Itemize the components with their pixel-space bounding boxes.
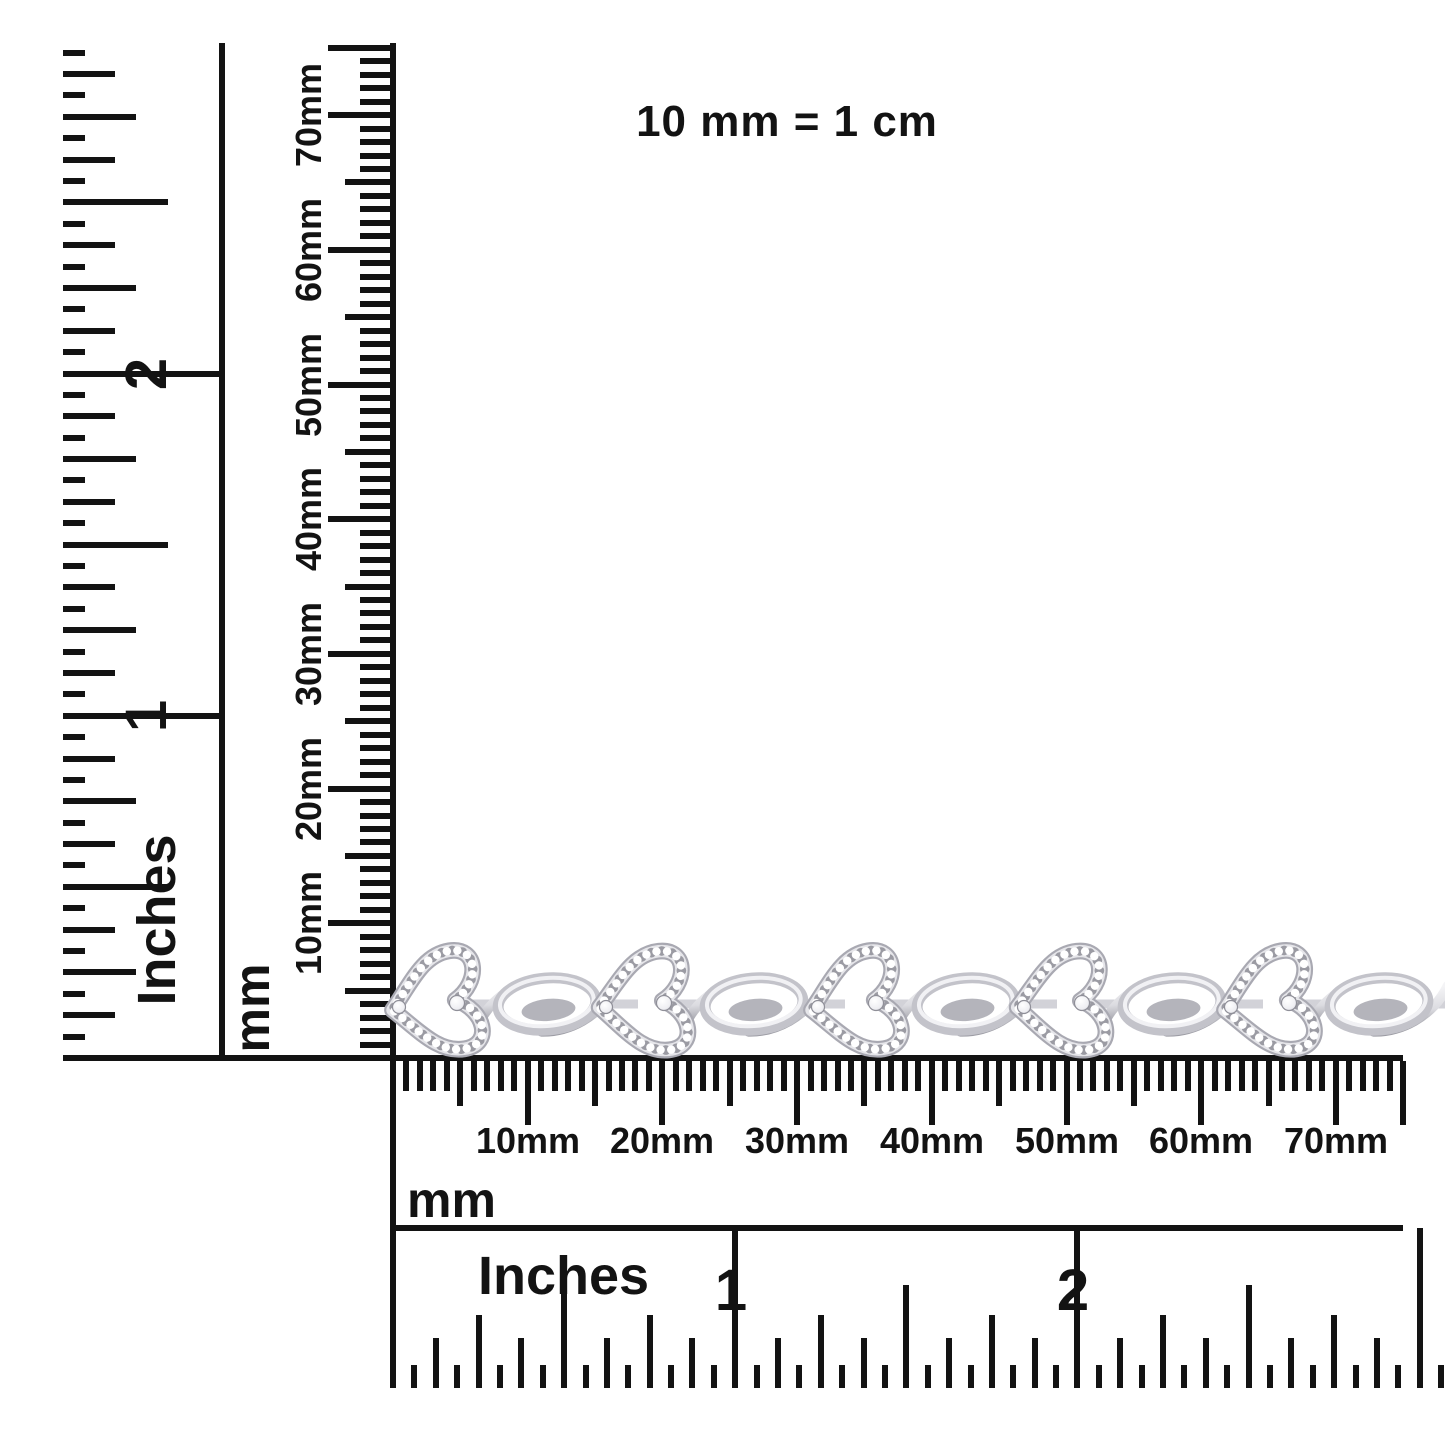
mm-tick [360, 139, 390, 145]
horizontal-inches-unit-label: Inches [478, 1249, 649, 1303]
inch-tick [63, 114, 136, 120]
mm-tick [360, 759, 390, 765]
inch-tick [818, 1315, 824, 1388]
inch-tick [796, 1365, 802, 1388]
inch-tick [647, 1315, 653, 1388]
product-scale-photo: 10 mm = 1 cm 12 10mm20mm30mm40mm50mm60mm… [0, 0, 1445, 1445]
inch-tick [1374, 1338, 1380, 1388]
inch-tick [540, 1365, 546, 1388]
mm-tick [360, 395, 390, 401]
inch-tick [63, 606, 85, 612]
inch-tick [63, 50, 85, 56]
mm-tick [360, 476, 390, 482]
mm-tick [345, 718, 390, 724]
vertical-mm-unit-label: mm [227, 964, 277, 1053]
mm-tick [328, 920, 390, 926]
mm-tick [360, 543, 390, 549]
mm-tick [360, 99, 390, 105]
inch-tick [946, 1338, 952, 1388]
inch-tick [1353, 1365, 1359, 1388]
mm-tick [360, 355, 390, 361]
mm-tick-label: 30mm [291, 602, 327, 706]
mm-tick [345, 853, 390, 859]
scale-note: 10 mm = 1 cm [636, 100, 938, 144]
mm-tick [360, 503, 390, 509]
mm-tick [360, 368, 390, 374]
inch-tick [583, 1365, 589, 1388]
inch-tick [754, 1365, 760, 1388]
inch-tick [63, 948, 85, 954]
inch-tick [1181, 1365, 1187, 1388]
vertical-mm-ruler-edge-line [390, 43, 396, 1388]
mm-tick [360, 772, 390, 778]
inch-tick [882, 1365, 888, 1388]
inch-tick [518, 1338, 524, 1388]
mm-tick [360, 530, 390, 536]
cleft-diamond [657, 996, 672, 1011]
inch-tick [604, 1338, 610, 1388]
inch-tick [63, 991, 85, 997]
inch-tick [63, 563, 85, 569]
inch-tick [1032, 1338, 1038, 1388]
inch-tick [1010, 1365, 1016, 1388]
inch-tick [63, 670, 115, 676]
mm-tick [360, 597, 390, 603]
mm-tick [360, 126, 390, 132]
inch-tick [63, 734, 85, 740]
mm-tick [360, 233, 390, 239]
inch-tick [454, 1365, 460, 1388]
inch-number-label: 1 [118, 700, 176, 732]
inch-tick [63, 905, 85, 911]
mm-tick [360, 220, 390, 226]
vertical-inches-unit-label: Inches [130, 834, 184, 1005]
mm-tick [360, 287, 390, 293]
inch-tick [1053, 1365, 1059, 1388]
mm-tick-label: 10mm [291, 871, 327, 975]
mm-tick [360, 880, 390, 886]
mm-tick-label: 70mm [1284, 1123, 1388, 1159]
inch-tick [1246, 1285, 1252, 1388]
inch-tick [63, 756, 115, 762]
mm-tick [360, 866, 390, 872]
inch-tick [63, 627, 136, 633]
inch-tick [63, 435, 85, 441]
twist-link [682, 972, 826, 1038]
inch-tick [903, 1285, 909, 1388]
mm-tick [328, 112, 390, 118]
mm-tick [360, 570, 390, 576]
inch-tick [63, 328, 115, 334]
mm-tick [345, 584, 390, 590]
inch-tick [63, 349, 85, 355]
mm-tick [360, 705, 390, 711]
inch-tick [1224, 1365, 1230, 1388]
mm-tick-label: 30mm [745, 1123, 849, 1159]
inch-tick [63, 499, 115, 505]
inch-number-label: 2 [118, 358, 176, 390]
mm-tick [328, 651, 390, 657]
mm-tick [360, 260, 390, 266]
mm-tick [328, 247, 390, 253]
tip-diamond [1018, 1001, 1031, 1014]
inch-tick [1160, 1315, 1166, 1388]
mm-tick [360, 435, 390, 441]
inch-tick [63, 135, 85, 141]
mm-tick [360, 72, 390, 78]
mm-tick [360, 839, 390, 845]
inch-tick [63, 1034, 85, 1040]
mm-tick-label: 40mm [880, 1123, 984, 1159]
mm-tick [360, 799, 390, 805]
mm-tick [360, 85, 390, 91]
inch-tick [1203, 1338, 1209, 1388]
tip-diamond [393, 1001, 406, 1014]
inch-number-label: 1 [715, 1262, 747, 1320]
cleft-diamond [1282, 996, 1297, 1011]
mm-tick [345, 449, 390, 455]
mm-tick [360, 206, 390, 212]
inch-tick [689, 1338, 695, 1388]
mm-tick [360, 328, 390, 334]
inch-tick [63, 285, 136, 291]
mm-tick [360, 166, 390, 172]
mm-tick [360, 610, 390, 616]
inch-tick [63, 1012, 115, 1018]
mm-tick-label: 70mm [291, 63, 327, 167]
inch-number-label: 2 [1057, 1262, 1089, 1320]
inch-tick [775, 1338, 781, 1388]
mm-tick [328, 382, 390, 388]
mm-tick [360, 58, 390, 64]
mm-tick-label: 20mm [610, 1123, 714, 1159]
inch-tick [63, 199, 168, 205]
mm-tick-label: 60mm [291, 198, 327, 302]
mm-tick [360, 193, 390, 199]
mm-tick [360, 826, 390, 832]
mm-tick [360, 813, 390, 819]
inch-tick [625, 1365, 631, 1388]
mm-tick [360, 907, 390, 913]
mm-tick [345, 314, 390, 320]
horizontal-mm-ruler-bottom-line [390, 1225, 1403, 1231]
mm-tick [360, 301, 390, 307]
inch-tick [1117, 1338, 1123, 1388]
inch-tick [63, 178, 85, 184]
inch-tick [63, 862, 85, 868]
inch-tick [63, 649, 85, 655]
mm-tick [328, 786, 390, 792]
mm-tick [360, 691, 390, 697]
inch-tick [63, 92, 85, 98]
twist-link [1307, 972, 1445, 1038]
mm-tick-label: 40mm [291, 467, 327, 571]
mm-tick [360, 408, 390, 414]
mm-tick-label: 20mm [291, 737, 327, 841]
mm-tick-label: 60mm [1149, 1123, 1253, 1159]
inch-tick [411, 1365, 417, 1388]
inch-tick [63, 841, 115, 847]
tip-diamond [1225, 1001, 1238, 1014]
inch-tick [63, 477, 85, 483]
inch-tick [63, 798, 136, 804]
inch-tick [711, 1365, 717, 1388]
inch-tick [989, 1315, 995, 1388]
mm-tick [360, 341, 390, 347]
inch-tick [63, 413, 115, 419]
inch-tick [668, 1365, 674, 1388]
mm-tick-label: 50mm [1015, 1123, 1119, 1159]
mm-tick [360, 274, 390, 280]
vertical-inch-ruler-edge-line [219, 43, 225, 1058]
inch-tick [63, 242, 115, 248]
inch-tick [63, 71, 115, 77]
inch-tick [1288, 1338, 1294, 1388]
inch-tick [63, 221, 85, 227]
mm-tick [360, 153, 390, 159]
inch-tick [63, 306, 85, 312]
mm-tick-label: 50mm [291, 333, 327, 437]
inch-tick [63, 691, 85, 697]
inch-tick [63, 157, 115, 163]
inch-tick [1417, 1228, 1423, 1388]
mm-tick [360, 732, 390, 738]
tip-diamond [812, 1001, 825, 1014]
inch-tick [433, 1338, 439, 1388]
mm-tick [360, 893, 390, 899]
inch-tick [839, 1365, 845, 1388]
cleft-diamond [1075, 996, 1090, 1011]
mm-tick [360, 489, 390, 495]
mm-tick [360, 557, 390, 563]
inch-tick [968, 1365, 974, 1388]
inch-tick [63, 927, 115, 933]
inch-tick [476, 1315, 482, 1388]
mm-tick [360, 624, 390, 630]
inch-tick [1267, 1365, 1273, 1388]
inch-tick [63, 777, 85, 783]
inch-tick [63, 969, 136, 975]
cleft-diamond [450, 996, 465, 1011]
mm-tick [360, 664, 390, 670]
horizontal-mm-unit-label: mm [407, 1175, 496, 1225]
bracelet-photo [380, 932, 1445, 1075]
tip-diamond [600, 1001, 613, 1014]
inch-tick [63, 584, 115, 590]
mm-tick [360, 637, 390, 643]
inch-tick [63, 542, 168, 548]
inch-tick [63, 392, 85, 398]
mm-tick [328, 45, 390, 51]
inch-tick [497, 1365, 503, 1388]
mm-tick [360, 462, 390, 468]
mm-tick [360, 422, 390, 428]
inch-tick [63, 456, 136, 462]
mm-tick [360, 678, 390, 684]
inch-tick [861, 1338, 867, 1388]
inch-tick [925, 1365, 931, 1388]
inch-tick [1331, 1315, 1337, 1388]
inch-tick [1096, 1365, 1102, 1388]
mm-tick-label: 10mm [476, 1123, 580, 1159]
mm-tick [328, 516, 390, 522]
mm-tick [360, 745, 390, 751]
inch-tick [63, 820, 85, 826]
inch-tick [1139, 1365, 1145, 1388]
inch-tick [1310, 1365, 1316, 1388]
mm-tick [345, 179, 390, 185]
cleft-diamond [869, 996, 884, 1011]
inch-tick [63, 520, 85, 526]
inch-tick [63, 264, 85, 270]
inch-tick [1395, 1365, 1401, 1388]
inch-tick [1438, 1365, 1444, 1388]
